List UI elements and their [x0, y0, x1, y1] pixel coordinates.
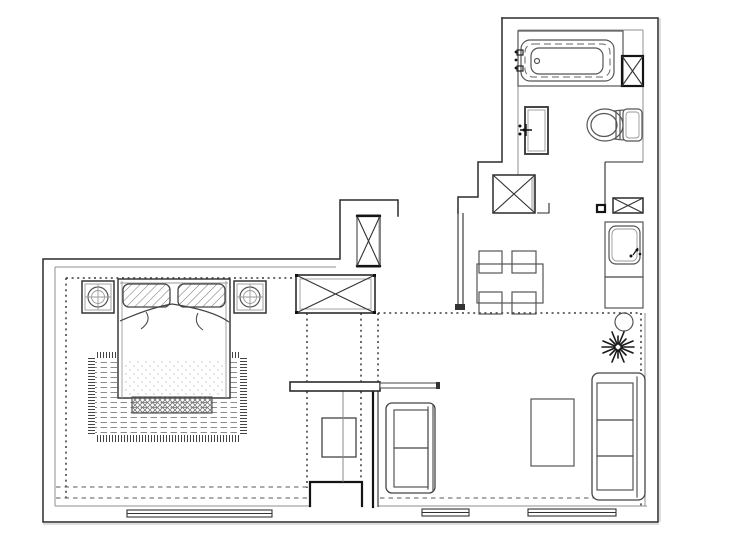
- door-step: [310, 482, 362, 506]
- dining-chair: [479, 251, 502, 273]
- vanity-sink: [519, 107, 549, 154]
- dining-chair: [512, 251, 536, 273]
- nightstand-left: [82, 281, 114, 313]
- tall-closet: [357, 215, 381, 267]
- tub-faucet-icon: [515, 50, 523, 71]
- sofa-large: [592, 373, 645, 500]
- kitchen-cabinet: [605, 277, 643, 308]
- tub-drain-icon: [535, 59, 540, 64]
- bed: [118, 279, 230, 398]
- bathroom-shaft: [622, 56, 643, 86]
- floor-plan-canvas: [0, 0, 740, 560]
- sofa-small: [386, 403, 435, 493]
- nightstand-right: [234, 281, 266, 313]
- window-living-right: [528, 509, 616, 516]
- coffee-table: [531, 399, 574, 466]
- bed-bench: [132, 397, 212, 413]
- windows: [127, 509, 616, 517]
- console-shelf: [290, 382, 440, 391]
- dining-table: [477, 264, 543, 303]
- wall-return: [597, 205, 605, 212]
- kitchen: [602, 198, 643, 362]
- kitchen-sink-counter: [605, 222, 643, 277]
- dining-area: [477, 251, 543, 314]
- plant-icon: [602, 332, 634, 362]
- bathtub: [515, 40, 614, 81]
- tv-cabinet: [322, 418, 356, 457]
- toilet: [587, 109, 642, 141]
- bathroom: [515, 31, 643, 154]
- hall-shaft: [493, 175, 536, 213]
- bathtub-platform: [518, 31, 623, 86]
- wardrobe: [295, 274, 376, 314]
- pillow: [178, 284, 225, 307]
- window-bedroom: [127, 510, 272, 517]
- pillow: [123, 284, 170, 307]
- floor-plan-page: [0, 0, 740, 560]
- kitchen-shaft: [613, 198, 643, 213]
- window-living-left: [422, 509, 469, 516]
- stool: [615, 313, 633, 331]
- wall-end-cap: [455, 304, 465, 310]
